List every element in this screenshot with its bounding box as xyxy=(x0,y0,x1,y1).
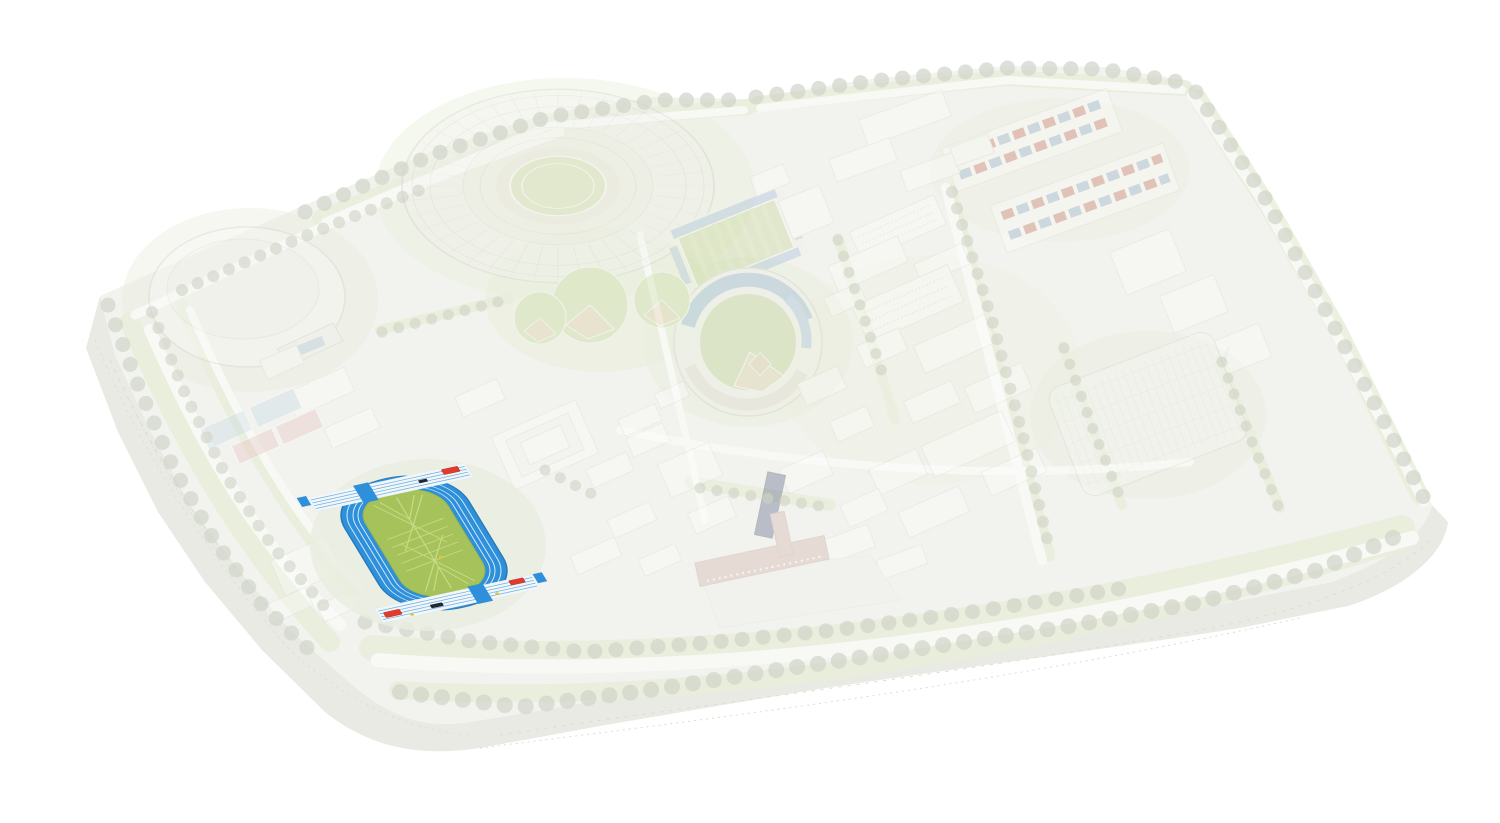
campus-map-canvas xyxy=(0,0,1500,823)
baseball-stadium[interactable] xyxy=(674,268,822,416)
campus-map-stage xyxy=(0,0,1500,823)
dome-arena[interactable] xyxy=(149,227,345,367)
